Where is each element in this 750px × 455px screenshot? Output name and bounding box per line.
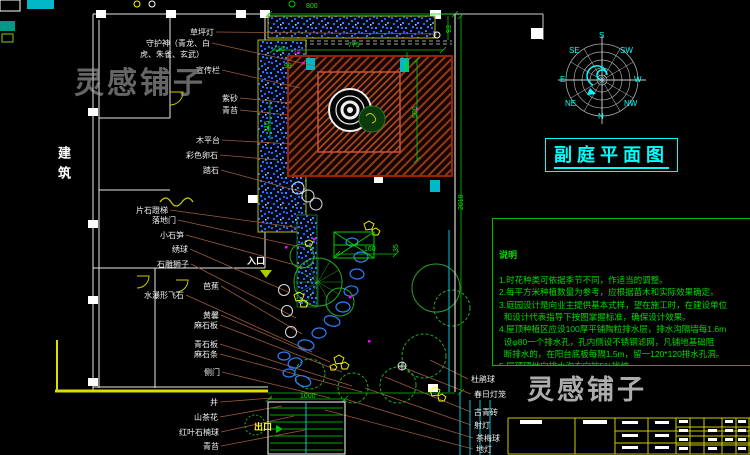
plan-label: 井	[210, 398, 218, 407]
dimension-text: 16	[277, 46, 285, 53]
leader-line	[221, 430, 305, 446]
dimension-text: 93	[446, 25, 453, 33]
notes-heading: 说明	[499, 249, 749, 261]
compass-direction-label: N	[598, 113, 604, 121]
watermark: 灵感铺子	[74, 58, 206, 102]
plan-label: 古青砖	[474, 408, 498, 417]
compass-direction-label: W	[634, 76, 642, 84]
plan-label: 射灯	[474, 421, 490, 430]
leader-line	[221, 315, 330, 362]
exit-label: 出口	[254, 423, 272, 432]
plan-label: 落地门	[152, 216, 176, 225]
plan-label: 青苔	[222, 106, 238, 115]
plan-label: 踏石	[203, 166, 219, 175]
entrance-arrow	[260, 270, 272, 278]
wood-deck	[288, 56, 452, 192]
plan-label: 木平台	[196, 136, 220, 145]
plan-label: 侧门	[204, 368, 220, 377]
leader-line	[365, 388, 471, 425]
note-line: 和设计代表指导下按图掌握标准，确保设计效果。	[499, 311, 749, 323]
plan-label: 彩色卵石	[186, 151, 218, 160]
plan-label: 石雕狮子	[157, 260, 189, 269]
building-label: 建筑	[54, 146, 73, 186]
dimension-text: 500	[412, 106, 419, 118]
dimension-text: 1000	[300, 393, 316, 400]
plan-label: 芭蕉	[203, 282, 219, 291]
dimension-text: 98	[284, 63, 292, 70]
corner-symbols	[0, 0, 295, 42]
dimension-text: 160	[364, 246, 376, 253]
dimension-text: 14	[293, 49, 301, 56]
dimension-text: 68	[404, 62, 411, 70]
dimension-text: 775	[348, 42, 360, 49]
plan-label: 青石板	[194, 340, 218, 349]
compass-direction-label: SE	[569, 47, 580, 55]
notes-panel: 说明 1.时花种类可依据季节不同，作适当的调整。2.每平方米种植数量为参考，应根…	[492, 218, 750, 366]
note-line: 2.每平方米种植数量为参考，应根据苗木和实际效果确定。	[499, 286, 749, 298]
compass-direction-label: E	[560, 76, 565, 84]
compass-direction-label: NW	[624, 100, 637, 108]
plan-label: 红叶石楠球	[179, 428, 219, 437]
note-line: 断排水的，在阳台底板每隔1.5m，留一120*120排水孔洞。	[499, 348, 749, 360]
leader-line	[220, 398, 272, 402]
plan-label: 山茶花	[194, 413, 218, 422]
plan-label: 麻石板	[194, 321, 218, 330]
plan-label: 水瀑形飞石	[144, 291, 184, 300]
note-line: 5.屋顶硬地向排水沟方向按5%找坡。	[499, 360, 749, 366]
note-line: 设φ80一个排水孔，孔内侧设不锈钢滤网，凡铺地基础阻	[499, 336, 749, 348]
note-line: 4.屋顶种植区应设100厚平铺陶粒排水层，排水沟隔墙每1.6m	[499, 323, 749, 335]
dimension-text: 35	[393, 244, 400, 252]
drawing-title: 副庭平面图	[545, 138, 678, 172]
plan-label: 麻石条	[194, 350, 218, 359]
dimension-text: 800	[306, 3, 318, 10]
plan-label: 春日灯笼	[474, 390, 506, 399]
plan-label: 小石笋	[160, 231, 184, 240]
leader-line	[186, 235, 306, 268]
note-line: 1.时花种类可依据季节不同，作适当的调整。	[499, 274, 749, 286]
compass-direction-label: S	[599, 32, 604, 40]
note-line: 3.庭园设计是向业主提供基本式样，望在施工时，在建设单位	[499, 299, 749, 311]
plan-label: 杜鹃球	[471, 375, 495, 384]
entrance-label: 入口	[247, 257, 265, 266]
cad-canvas: 副庭平面图 说明 1.时花种类可依据季节不同，作适当的调整。2.每平方米种植数量…	[0, 0, 750, 455]
compass-direction-label: SW	[620, 47, 633, 55]
stone-lantern	[398, 362, 406, 370]
dimension-text: 116	[264, 121, 271, 132]
plan-label: 守护神（青龙、白	[146, 39, 210, 48]
watermark: 灵感铺子	[527, 368, 647, 407]
leader-line	[220, 325, 342, 372]
compass-direction-label: NE	[565, 100, 576, 108]
plan-label: 茶梅球	[476, 434, 500, 443]
dimension-text: 2010	[458, 194, 465, 210]
deck-foliage	[359, 106, 385, 132]
stairs	[55, 340, 490, 455]
plan-label: 绣球	[172, 245, 188, 254]
title-block	[508, 418, 750, 454]
plan-label: 黄馨	[203, 311, 219, 320]
plan-label: 片石蹬梯	[136, 206, 168, 215]
plan-label: 青苔	[203, 442, 219, 451]
plan-label: 紫砂	[222, 94, 238, 103]
plan-label: 草坪灯	[190, 28, 214, 37]
plan-label: 地灯	[476, 445, 492, 454]
